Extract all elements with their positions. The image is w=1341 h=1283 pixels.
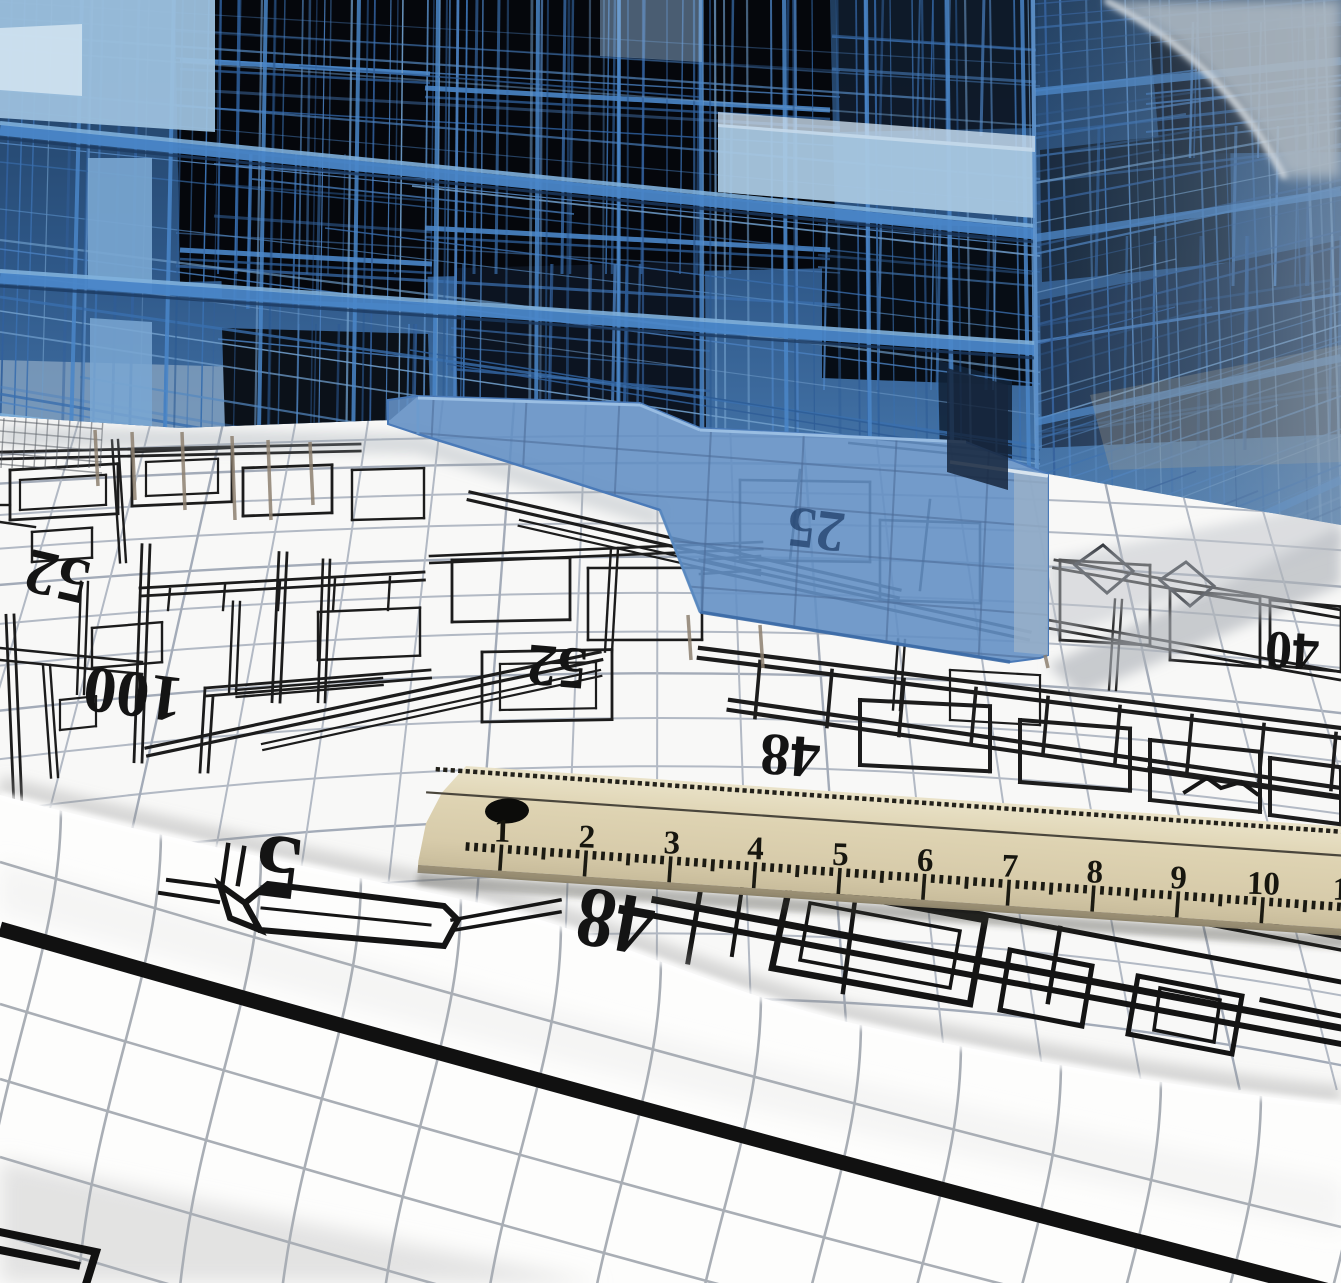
svg-text:100: 100 <box>79 652 186 737</box>
svg-text:52: 52 <box>524 632 590 703</box>
svg-text:8: 8 <box>1086 854 1104 891</box>
svg-text:9: 9 <box>1170 860 1188 897</box>
svg-text:4: 4 <box>747 831 765 868</box>
svg-text:1: 1 <box>493 813 511 850</box>
svg-text:48: 48 <box>758 721 822 791</box>
svg-text:3: 3 <box>663 825 681 862</box>
svg-text:6: 6 <box>916 843 934 880</box>
svg-text:5: 5 <box>832 837 850 874</box>
svg-text:25: 25 <box>783 494 848 566</box>
svg-text:11: 11 <box>1332 872 1341 909</box>
svg-text:10: 10 <box>1246 866 1280 903</box>
svg-text:40: 40 <box>1263 620 1320 683</box>
svg-text:2: 2 <box>578 819 596 856</box>
svg-text:48: 48 <box>569 868 662 976</box>
svg-text:7: 7 <box>1001 848 1019 885</box>
